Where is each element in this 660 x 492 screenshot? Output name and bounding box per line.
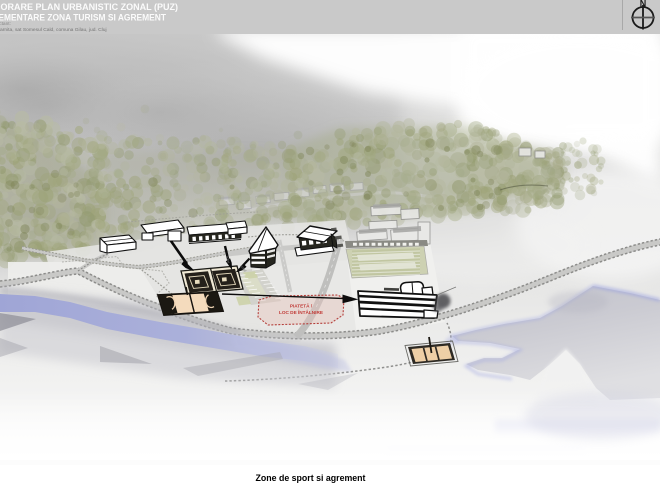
svg-text:ELABORARE PLAN URBANISTIC ZONA: ELABORARE PLAN URBANISTIC ZONAL (PUZ) <box>0 2 178 12</box>
svg-text:N: N <box>640 0 647 9</box>
svg-text:LOC DE ÎNTÂLNIRE: LOC DE ÎNTÂLNIRE <box>279 308 323 315</box>
svg-text:REGLEMENTARE ZONA TURISM SI AG: REGLEMENTARE ZONA TURISM SI AGREMENT <box>0 13 167 23</box>
svg-text:Proiectant:: Proiectant: <box>0 21 11 27</box>
svg-text:PIATETĂ /: PIATETĂ / <box>290 303 313 309</box>
svg-text:arnita, sat Somesul Cald, comu: arnita, sat Somesul Cald, comuna Gilau, … <box>0 27 107 33</box>
svg-text:Zone de sport si agrement: Zone de sport si agrement <box>256 473 366 483</box>
